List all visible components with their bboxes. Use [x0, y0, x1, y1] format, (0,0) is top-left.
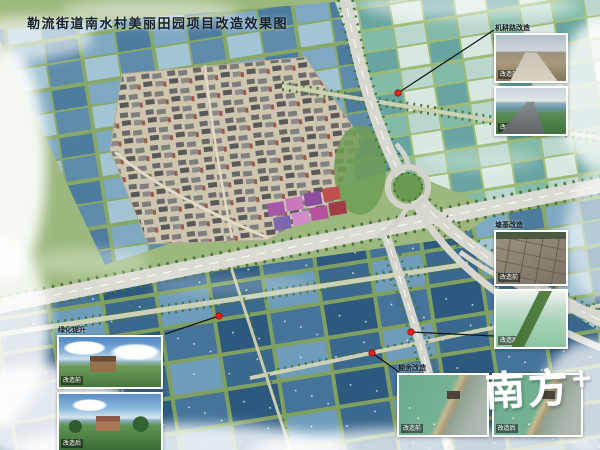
panel-pond-bank-title: 塘基改造 — [495, 221, 568, 229]
marker-pond-bank — [408, 329, 414, 335]
marker-shed — [369, 350, 375, 356]
shed-after-photo: 改造后 — [492, 373, 584, 437]
effect-rendering-image: 勒流街道南水村美丽田园项目改造效果图 机耕路改造 改造前 改造后 塘基改造 改造… — [0, 0, 600, 450]
after-label: 改造后 — [498, 123, 520, 132]
marker-greening — [216, 313, 222, 319]
pond-bank-after-photo: 改造后 — [494, 289, 568, 349]
pond-bank-before-photo: 改造前 — [494, 230, 568, 286]
panel-pond-bank: 塘基改造 改造前 改造后 — [494, 221, 568, 349]
panel-shed: 棚舍改造 改造前 改造后 南方+ — [397, 364, 583, 437]
panel-shed-title: 棚舍改造 — [398, 364, 583, 372]
farm-road-before-photo: 改造前 — [494, 33, 568, 83]
after-label: 改造后 — [61, 439, 83, 448]
greening-before-photo: 改造前 — [57, 335, 163, 389]
greening-after-photo: 改造后 — [57, 392, 163, 450]
marker-farm-road — [395, 90, 401, 96]
shed-before-photo: 改造前 — [397, 373, 489, 437]
panel-farm-road: 机耕路改造 改造前 改造后 — [494, 24, 568, 136]
panel-greening-title: 绿化提升 — [58, 326, 163, 334]
before-label: 改造前 — [498, 70, 520, 79]
after-label: 改造后 — [498, 336, 520, 345]
panel-farm-road-title: 机耕路改造 — [495, 24, 568, 32]
panel-greening: 绿化提升 改造前 改造后 — [57, 326, 163, 450]
before-label: 改造前 — [401, 424, 423, 433]
before-label: 改造前 — [61, 376, 83, 385]
page-title: 勒流街道南水村美丽田园项目改造效果图 — [27, 13, 288, 32]
after-label: 改造后 — [496, 424, 518, 433]
farm-road-after-photo: 改造后 — [494, 86, 568, 136]
before-label: 改造前 — [498, 273, 520, 282]
